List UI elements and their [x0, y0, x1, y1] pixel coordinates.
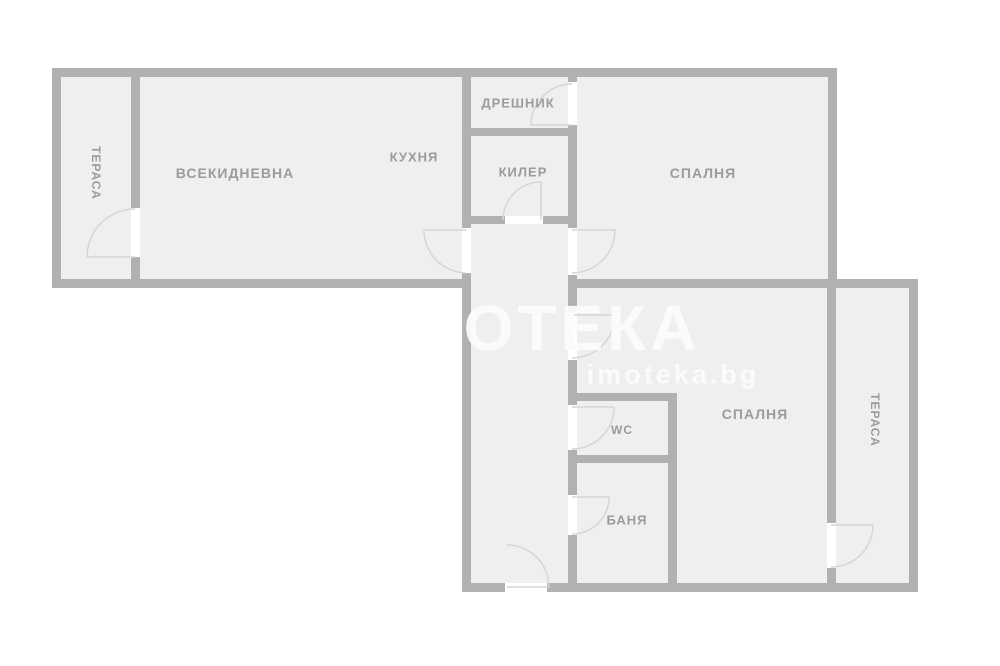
floor-plan: ТЕРАСА ВСЕКИДНЕВНА КУХНЯ ДРЕШНИК КИЛЕР С… — [0, 0, 1000, 666]
arc-entrance-door — [507, 545, 549, 587]
watermark-site: imoteka.bg — [587, 360, 760, 391]
bath-label: БАНЯ — [607, 513, 648, 528]
terrace-left-label: ТЕРАСА — [89, 146, 103, 200]
terrace-right-label: ТЕРАСА — [868, 393, 882, 447]
arc-living-corridor-door — [424, 230, 466, 273]
bedroom-bottom-label: СПАЛНЯ — [722, 406, 788, 422]
arc-pantry-door — [503, 182, 541, 220]
pantry-label: КИЛЕР — [499, 165, 548, 180]
dressing-room-label: ДРЕШНИК — [481, 96, 554, 111]
watermark-logo: ОТЕКА — [464, 291, 701, 365]
bedroom-top-label: СПАЛНЯ — [670, 165, 736, 181]
arc-terrace-right-door — [831, 525, 873, 567]
kitchen-label: КУХНЯ — [390, 150, 439, 165]
arc-wc-door — [572, 407, 614, 449]
living-room-label: ВСЕКИДНЕВНА — [176, 165, 294, 181]
arc-bath-door — [572, 497, 609, 534]
arc-terrace-left-door — [87, 209, 135, 257]
wc-label: WC — [611, 423, 633, 437]
arc-bedroom-top-door — [572, 230, 615, 273]
